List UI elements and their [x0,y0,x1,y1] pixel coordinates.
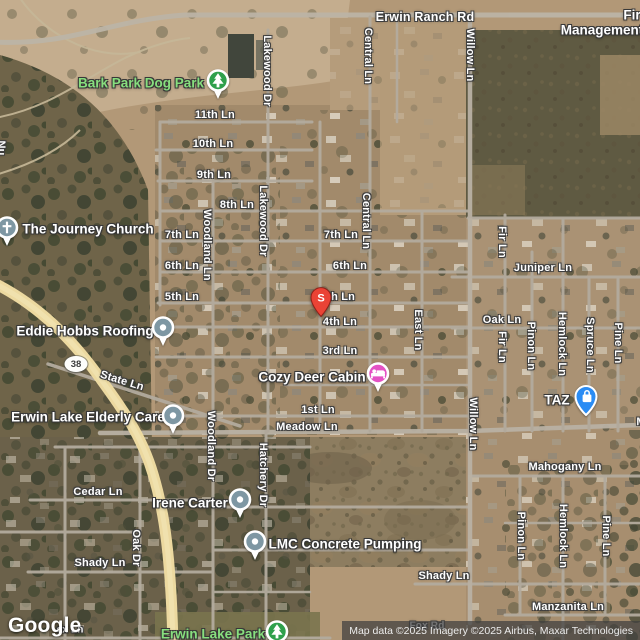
poi-label-the-journey-church[interactable]: The Journey Church [22,222,153,237]
street-label-erwin-ranch-rd: Erwin Ranch Rd [376,10,475,24]
poi-label-taz[interactable]: TAZ [544,393,569,408]
street-label-pinon-ln: Pinon Ln [525,322,537,371]
street-label-cedar-ln: Cedar Ln [73,486,122,498]
street-label-m: M [636,416,640,428]
street-label-hatchery-dr: Hatchery Dr [257,443,269,508]
poi-label-erwin-lake-elderly-care[interactable]: Erwin Lake Elderly Care [11,410,165,425]
street-label-shady-ln: Shady Ln [74,557,125,569]
poi-label-bark-park-dog-park[interactable]: Bark Park Dog Park [78,76,204,91]
poi-label-cozy-deer-cabin[interactable]: Cozy Deer Cabin [258,370,365,385]
street-label-central-ln: Central Ln [362,28,374,84]
street-label-oak-dr: Oak Dr [130,529,142,566]
street-label-7th-ln: 7th Ln [165,229,199,241]
poi-label-lmc-concrete-pumping[interactable]: LMC Concrete Pumping [268,537,421,552]
poi-label-management[interactable]: Management [561,23,640,38]
street-label-lakewood-dr: Lakewood Dr [257,185,269,256]
street-label-lakewood-dr: Lakewood Dr [261,35,273,106]
poi-label-erwin-lake-park[interactable]: Erwin Lake Park [161,627,265,640]
poi-label-eddie-hobbs-roofing[interactable]: Eddie Hobbs Roofing [16,324,153,339]
street-label-manzanita-ln: Manzanita Ln [532,601,604,613]
street-label-meadow-ln: Meadow Ln [276,421,338,433]
street-label-5th-ln: 5th Ln [165,291,199,303]
poi-label-fir[interactable]: Fir [623,8,640,23]
poi-marker-the-journey-church--cross-icon[interactable] [0,216,19,247]
street-label-nu: Nu [0,140,7,155]
street-label-willow-ln: Willow Ln [464,28,476,81]
street-label-woodland-ln: Woodland Ln [201,209,213,281]
street-label-pinon-ln: Pinon Ln [515,512,527,561]
street-label-fir-ln: Fir Ln [496,226,508,258]
poi-marker-irene-carter--dot-icon[interactable] [228,488,252,519]
poi-marker-erwin-lake-elderly-care--dot-icon[interactable] [161,404,185,435]
street-label-6th-ln: 6th Ln [333,260,367,272]
street-label-oak-ln: Oak Ln [483,314,522,326]
street-label-woodland-dr: Woodland Dr [205,411,217,481]
poi-marker-lmc-concrete-pumping--dot-icon[interactable] [243,530,267,561]
street-label-3rd-ln: 3rd Ln [323,345,358,357]
poi-marker-bark-park-dog-park--tree-icon[interactable] [206,69,230,100]
poi-marker-eddie-hobbs-roofing--dot-icon[interactable] [151,316,175,347]
street-label-mahogany-ln: Mahogany Ln [528,461,601,473]
poi-marker-cozy-deer-cabin--bed-icon[interactable] [366,362,390,393]
street-label-juniper-ln: Juniper Ln [514,262,572,274]
street-label-hemlock-ln: Hemlock Ln [556,312,568,376]
street-label-6th-ln: 6th Ln [165,260,199,272]
street-label-state-ln: State Ln [99,369,146,394]
street-label-spruce-ln: Spruce Ln [584,317,596,373]
street-label-1st-ln: 1st Ln [301,404,335,416]
street-label-11th-ln: 11th Ln [195,109,235,121]
street-label-10th-ln: 10th Ln [193,138,234,150]
street-label-shady-ln: Shady Ln [418,570,469,582]
street-label-9th-ln: 9th Ln [197,169,231,181]
svg-text:S: S [317,293,324,305]
street-label-8th-ln: 8th Ln [220,199,254,211]
poi-label-irene-carter[interactable]: Irene Carter [152,496,228,511]
street-label-pine-ln: Pine Ln [600,515,612,556]
selected-place-pin[interactable]: S [310,287,332,322]
street-label-east-ln: East Ln [412,309,424,350]
map-attribution: Map data ©2025 Imagery ©2025 Airbus, Max… [342,621,640,640]
poi-marker-taz--bag-icon[interactable] [573,384,599,416]
street-label-hemlock-ln: Hemlock Ln [557,504,569,568]
street-label-willow-ln: Willow Ln [467,397,479,450]
google-logo[interactable]: Google [8,614,82,638]
street-label-pine-ln: Pine Ln [612,322,624,363]
street-label-7th-ln: 7th Ln [324,229,358,241]
street-label-fir-ln: Fir Ln [496,331,508,363]
poi-marker-erwin-lake-park--tree-icon[interactable] [265,620,289,640]
map-canvas[interactable]: Erwin Ranch Rd11th Ln10th Ln9th Ln8th Ln… [0,0,640,640]
street-label-central-ln: Central Ln [360,193,372,249]
